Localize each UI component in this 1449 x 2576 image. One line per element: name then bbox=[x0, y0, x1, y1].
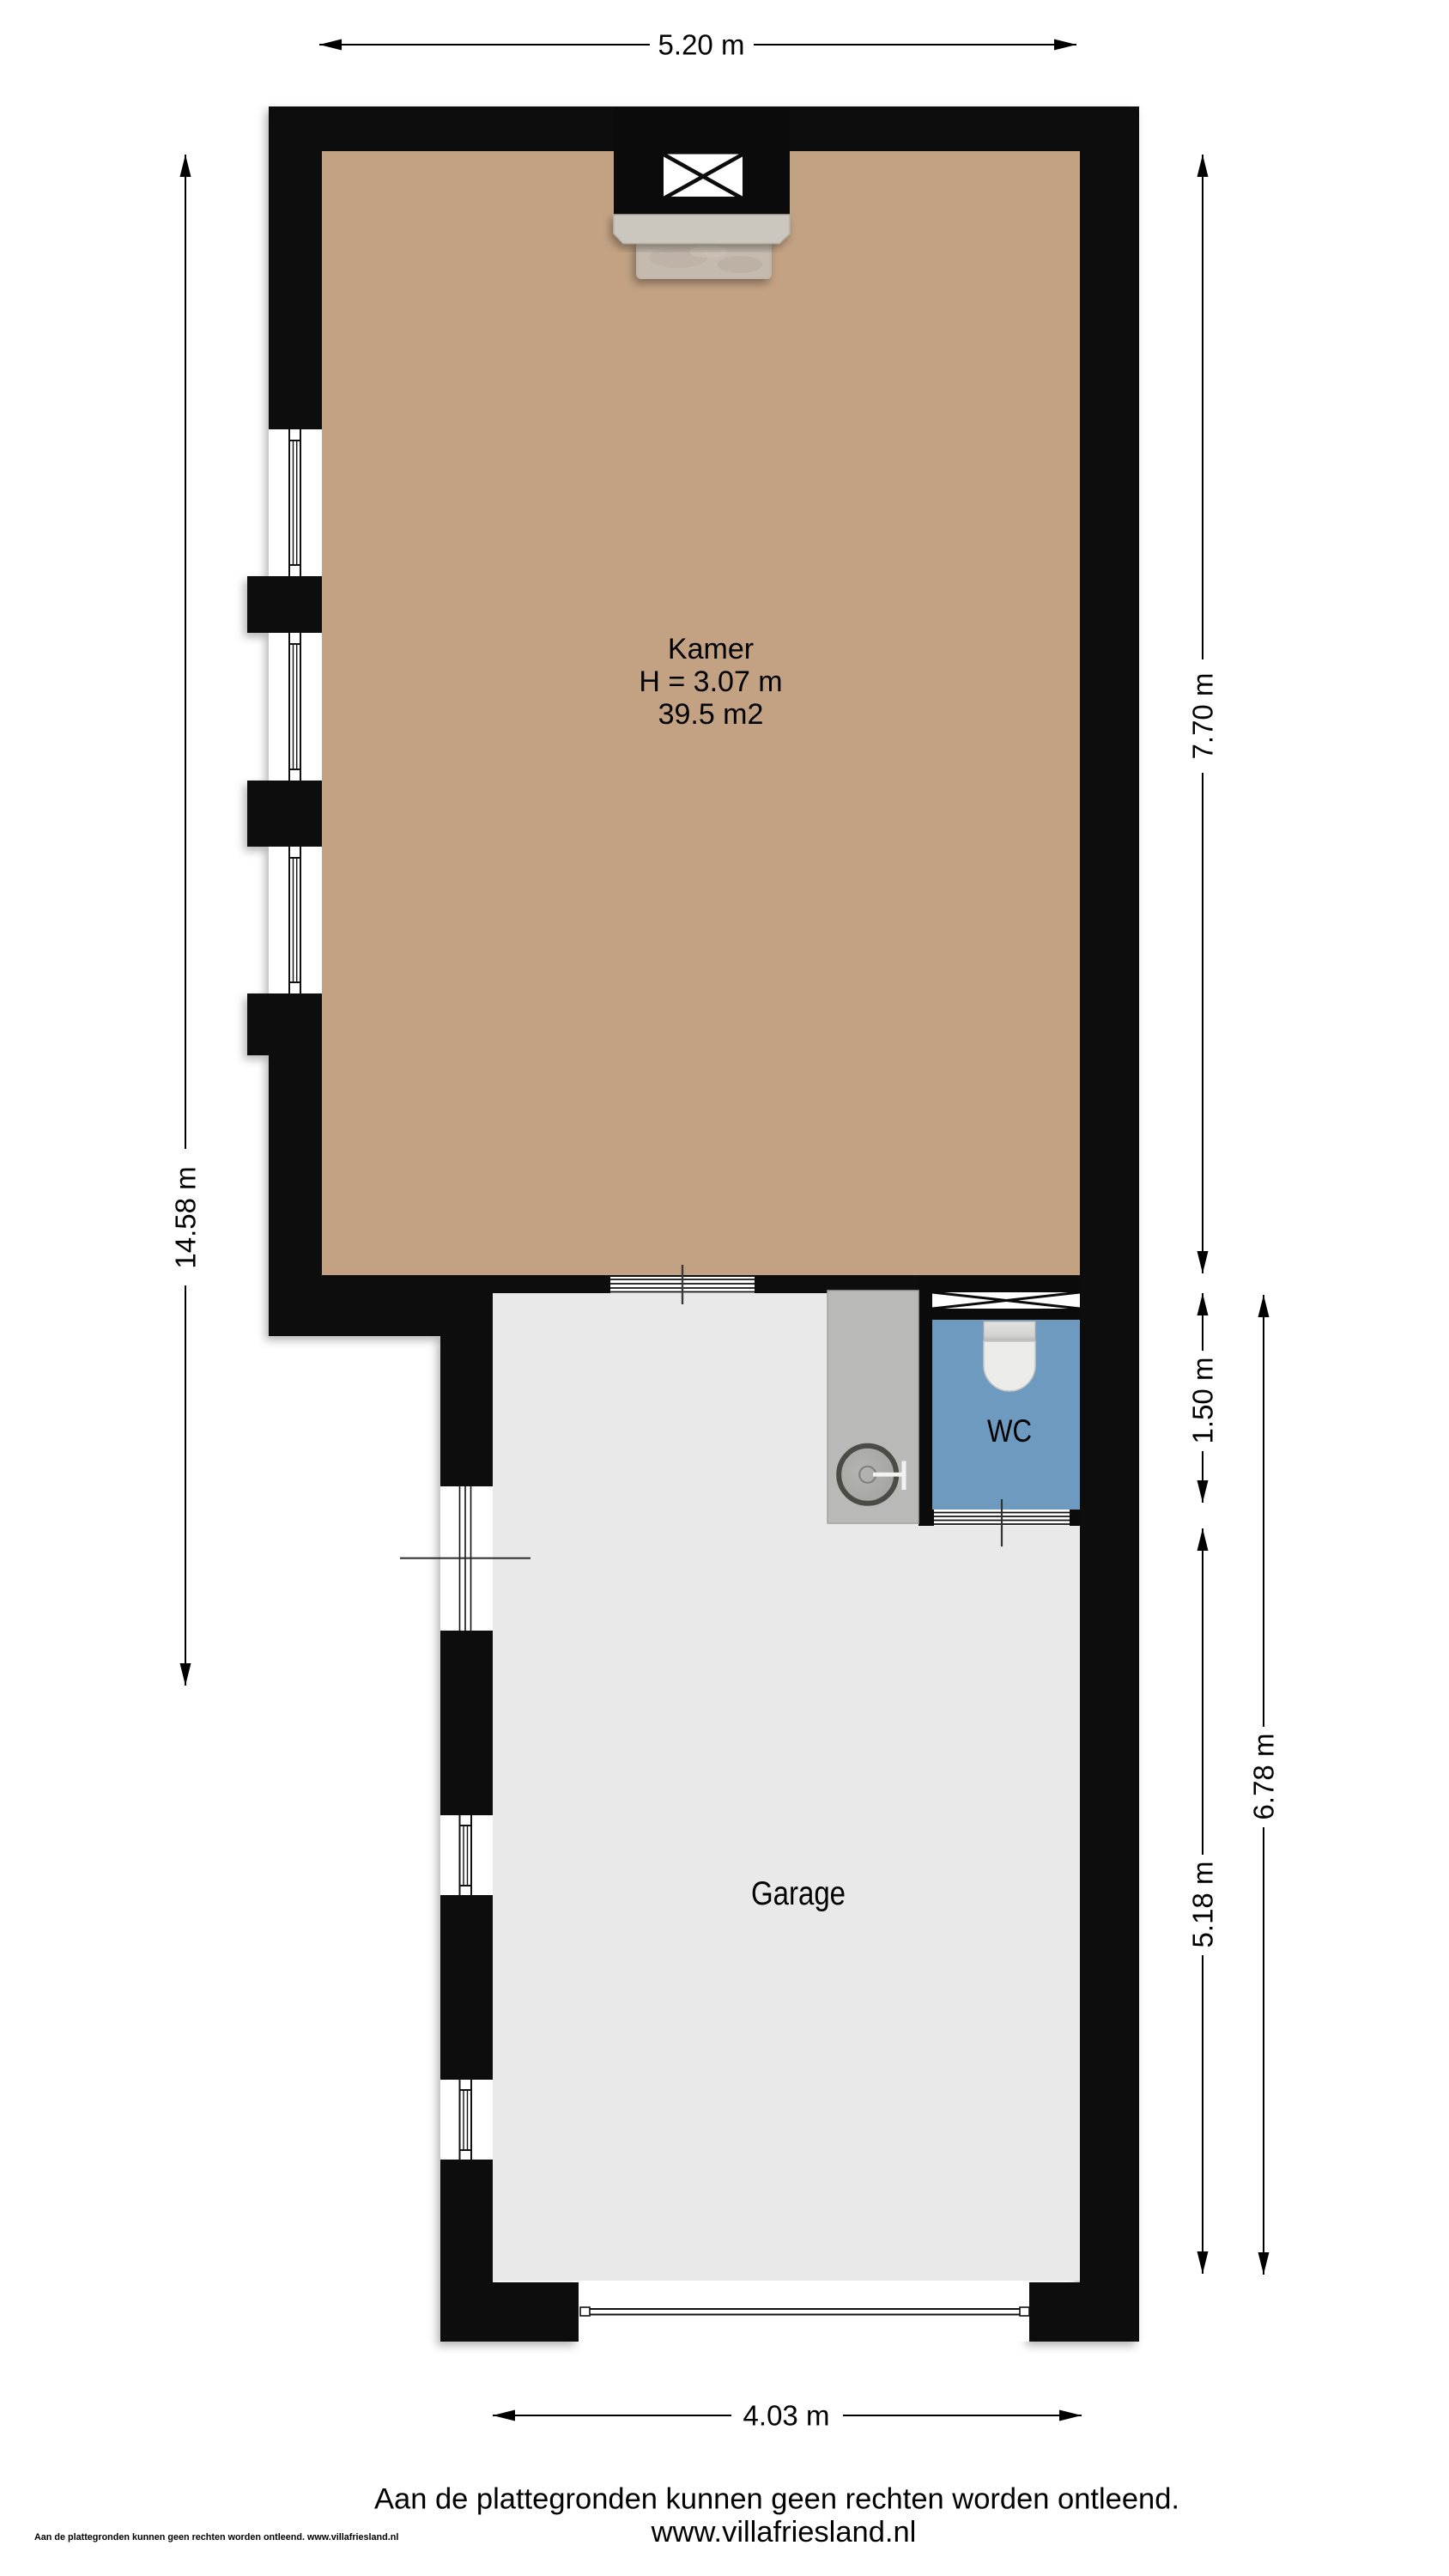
svg-text:39.5 m2: 39.5 m2 bbox=[658, 698, 764, 731]
svg-text:5.18 m: 5.18 m bbox=[1187, 1862, 1219, 1948]
svg-text:Aan de plattegronden kunnen ge: Aan de plattegronden kunnen geen rechten… bbox=[34, 2532, 398, 2543]
svg-text:1.50 m: 1.50 m bbox=[1187, 1358, 1219, 1444]
svg-text:www.villafriesland.nl: www.villafriesland.nl bbox=[651, 2516, 917, 2549]
svg-text:WC: WC bbox=[987, 1413, 1032, 1449]
svg-text:6.78 m: 6.78 m bbox=[1248, 1734, 1280, 1820]
svg-text:7.70 m: 7.70 m bbox=[1187, 673, 1219, 760]
svg-text:4.03 m: 4.03 m bbox=[743, 2400, 830, 2432]
svg-text:Aan de plattegronden kunnen ge: Aan de plattegronden kunnen geen rechten… bbox=[374, 2483, 1179, 2516]
svg-text:Kamer: Kamer bbox=[668, 633, 754, 665]
svg-text:14.58 m: 14.58 m bbox=[170, 1166, 202, 1268]
svg-text:Garage: Garage bbox=[751, 1875, 846, 1912]
svg-text:5.20 m: 5.20 m bbox=[658, 29, 745, 61]
svg-text:H = 3.07 m: H = 3.07 m bbox=[639, 665, 782, 698]
